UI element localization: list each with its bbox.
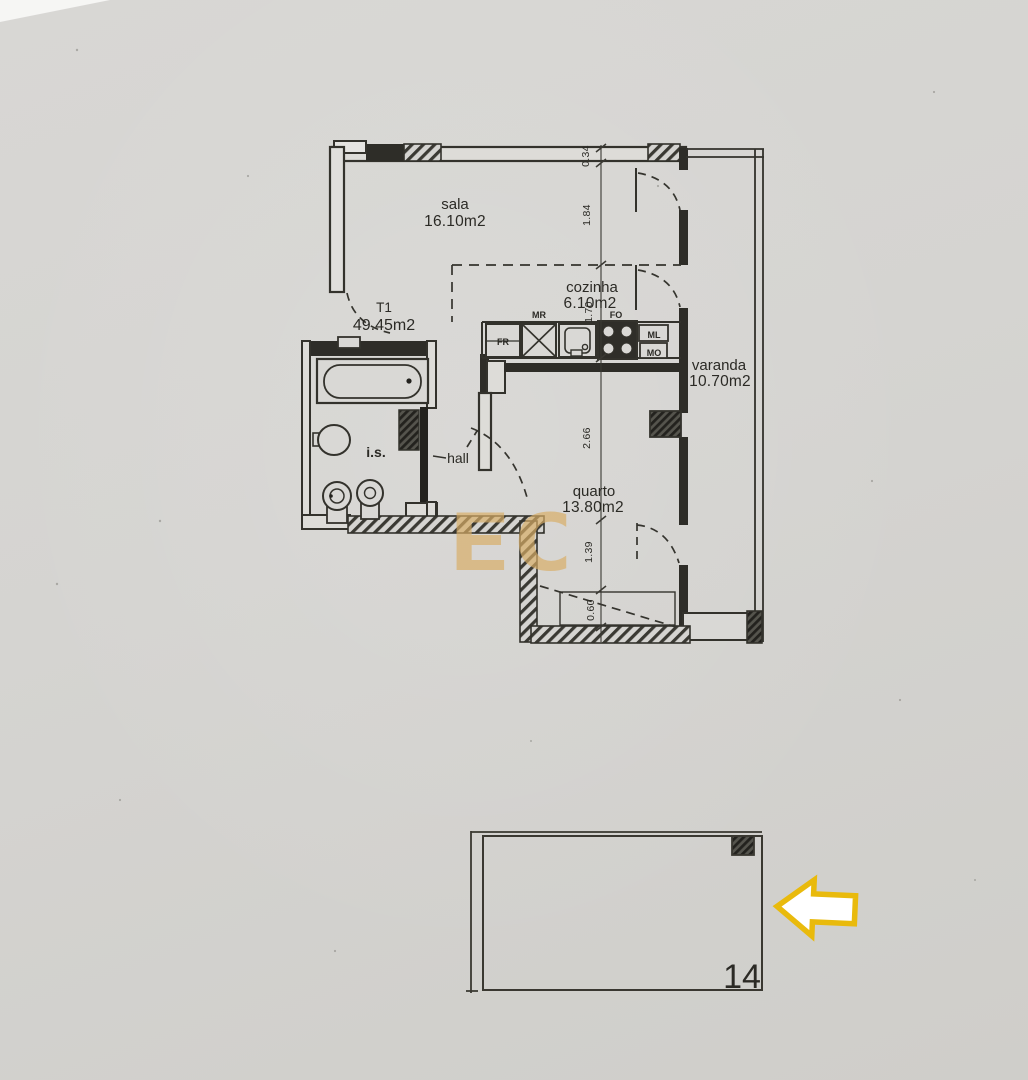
label-varanda: varanda (692, 357, 747, 374)
parking-pillar (732, 836, 754, 855)
bathtub (317, 359, 428, 403)
wall-pillar (650, 411, 681, 437)
label-bathroom: i.s. (366, 444, 385, 460)
dim-0.34: 0.34 (580, 145, 592, 167)
dim-0.60: 0.60 (585, 599, 597, 621)
label-sala-area: 16.10m2 (424, 213, 486, 230)
bathroom-door-leaf (420, 407, 428, 504)
label-quarto: quarto (573, 483, 616, 500)
label-unit-type: T1 (376, 300, 392, 315)
label-mo: MO (647, 348, 662, 358)
bidet (357, 480, 383, 519)
label-mr: MR (532, 310, 546, 320)
varanda-window (683, 613, 750, 640)
dim-1.70: 1.70 (583, 301, 595, 323)
label-sala: sala (441, 196, 469, 213)
washbasin (313, 425, 350, 455)
varanda-railing (755, 149, 763, 642)
stove (598, 321, 637, 359)
highlight-arrow (776, 878, 856, 937)
dim-1.84: 1.84 (581, 204, 593, 226)
dim-2.66: 2.66 (581, 427, 593, 449)
label-hall: hall (447, 450, 469, 466)
parking-space (466, 831, 762, 993)
varanda-top-wall (686, 149, 764, 157)
scanned-floor-plan-page: sala 16.10m2 cozinha 6.10m2 varanda 10.7… (0, 0, 1028, 1080)
dimension-labels: 0.34 1.84 1.70 2.66 1.39 0.60 (580, 145, 597, 621)
sala-varanda-door-arc (638, 173, 680, 210)
hall-leader-line (433, 456, 446, 458)
washing-machine (522, 324, 556, 357)
quarto-varanda-door-arc (637, 523, 679, 565)
parking-number: 14 (723, 958, 761, 996)
label-ml: ML (648, 330, 661, 340)
cozinha-varanda-door-arc (638, 270, 680, 307)
label-fo: FO (610, 310, 623, 320)
left-arrow-icon (776, 878, 856, 937)
label-fr: FR (497, 337, 509, 347)
paper-texture (0, 0, 976, 952)
dimension-line (596, 144, 606, 642)
label-cozinha: cozinha (566, 279, 618, 296)
ec-watermark: EC (448, 499, 574, 589)
label-varanda-area: 10.70m2 (689, 373, 751, 390)
kitchen-sink (559, 324, 596, 357)
floor-plan-drawing: sala 16.10m2 cozinha 6.10m2 varanda 10.7… (0, 0, 1028, 1080)
bathroom-column (399, 410, 419, 450)
toilet (323, 482, 351, 523)
label-unit-area: 49.45m2 (353, 317, 415, 334)
dim-1.39: 1.39 (583, 541, 595, 563)
